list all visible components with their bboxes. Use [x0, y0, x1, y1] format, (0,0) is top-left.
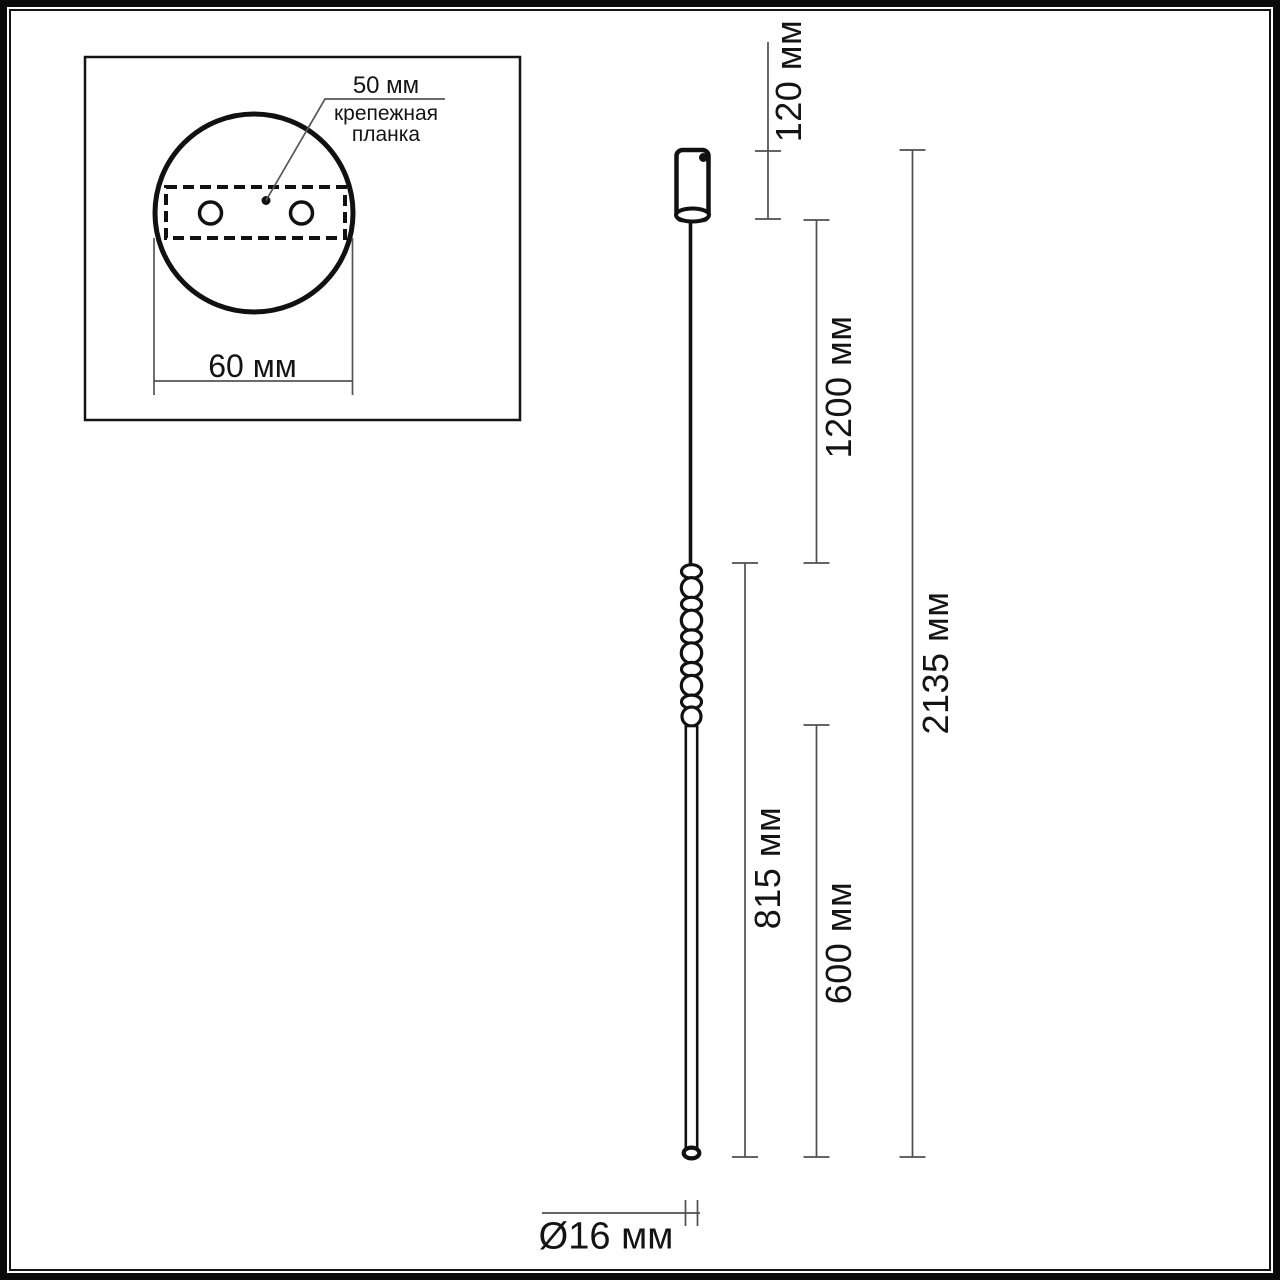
base-width-label: 60 мм: [192, 348, 313, 385]
bracket-name-label: крепежная планка: [324, 103, 448, 145]
canopy-screw: [699, 153, 708, 162]
pendant-lamp: [676, 150, 709, 1158]
mounting-bracket-dashed-outline: [166, 187, 345, 238]
bead-sphere: [682, 707, 701, 726]
bead-sphere: [681, 675, 701, 695]
bracket-dim-label: 50 мм: [336, 72, 436, 100]
line-art: [0, 0, 1280, 1280]
fixture-length-label: 815 мм: [747, 807, 789, 930]
suspension-length-label: 1200 мм: [818, 315, 860, 458]
dimension-lines: [542, 42, 926, 1226]
overall-height-label: 2135 мм: [915, 591, 957, 734]
canopy-bottom-cap: [676, 209, 709, 222]
decorative-beads: [681, 565, 701, 726]
drawing-sheet: 50 мм крепежная планка 60 мм 120 мм 1200…: [0, 0, 1280, 1280]
bead-sphere: [681, 643, 701, 663]
canopy-height-label: 120 мм: [768, 20, 810, 143]
bead-sphere: [681, 610, 701, 630]
bead-sphere: [681, 578, 701, 598]
screw-hole-right: [291, 202, 313, 224]
screw-hole-left: [200, 202, 222, 224]
light-tube: [686, 726, 697, 1148]
drawing-canvas: 50 мм крепежная планка 60 мм 120 мм 1200…: [0, 0, 1280, 1280]
tube-end-cap: [684, 1148, 700, 1159]
tube-diameter-label: Ø16 мм: [539, 1216, 674, 1259]
tube-length-label: 600 мм: [818, 882, 860, 1005]
